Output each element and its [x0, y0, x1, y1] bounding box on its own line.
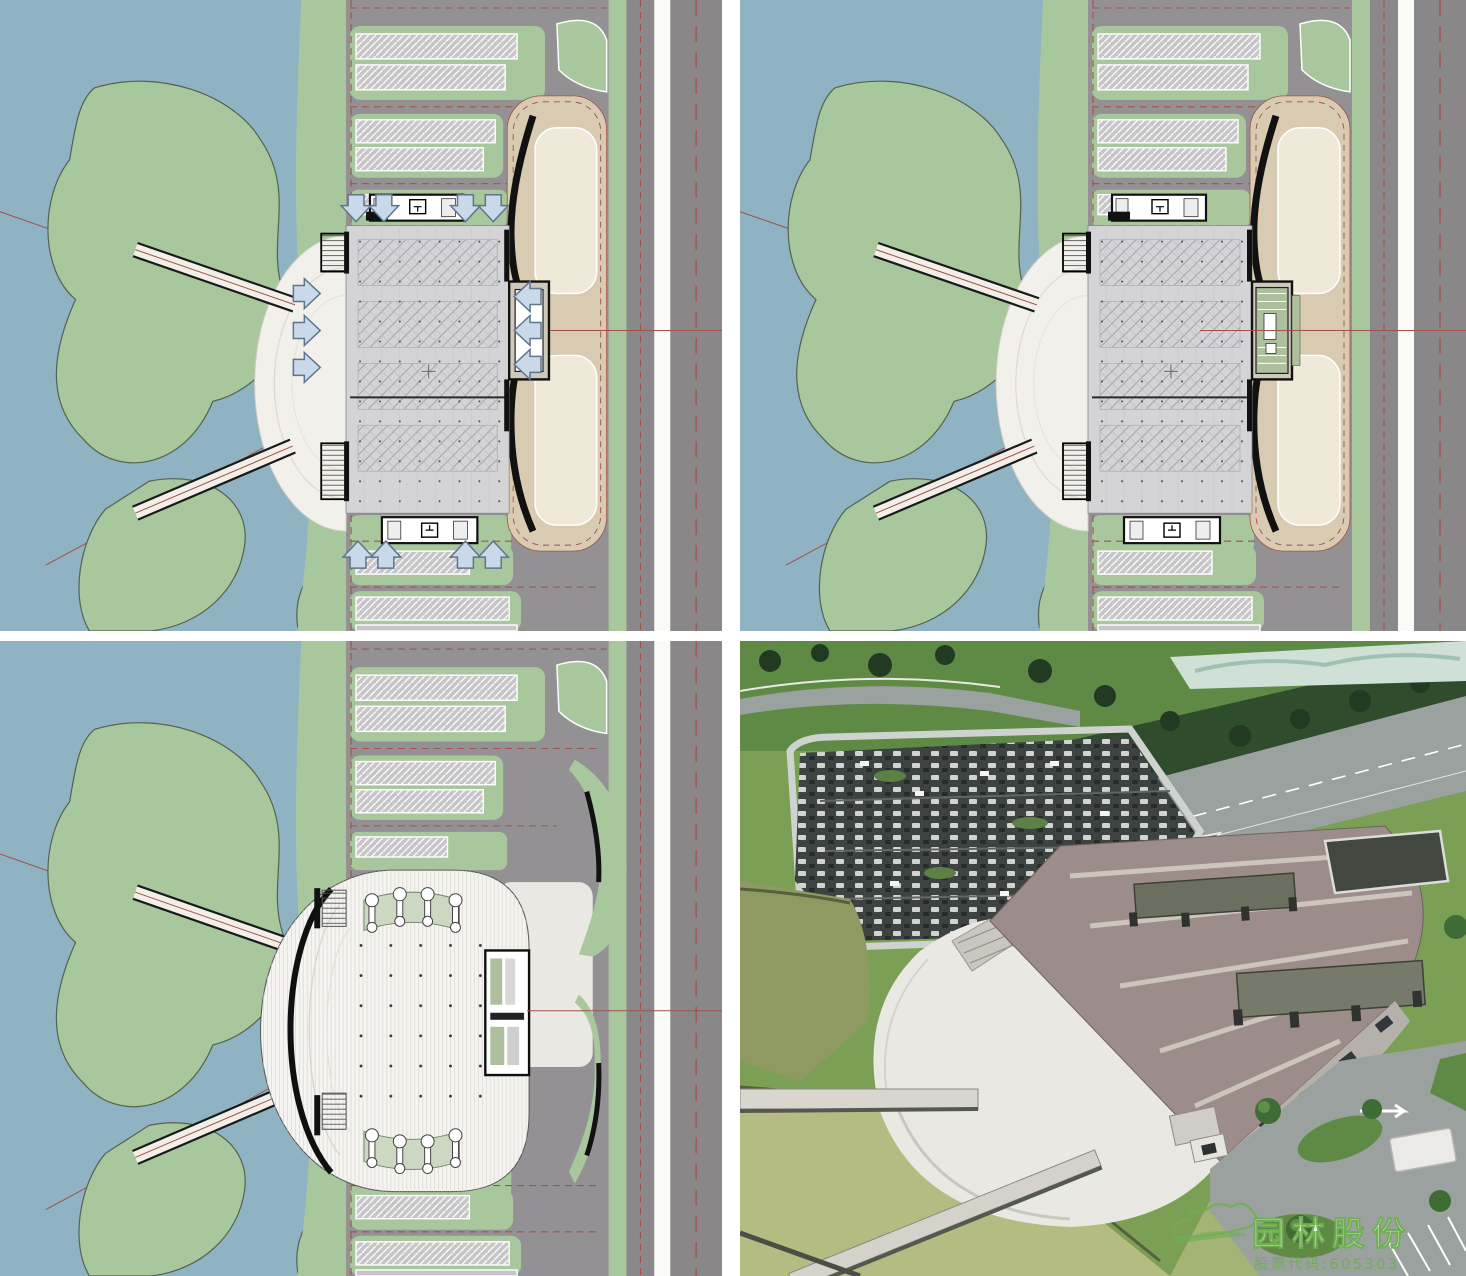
presentation-collage: 园林股份 股票代码:605303 [0, 0, 1466, 1276]
panel-aerial-photo: 园林股份 股票代码:605303 [740, 641, 1466, 1276]
watermark-stock-code: 股票代码:605303 [1254, 1256, 1400, 1273]
building-roof [261, 870, 532, 1192]
panel-roof-plan [0, 641, 722, 1276]
watermark-company: 园林股份 [1252, 1214, 1412, 1253]
panel-site-plan-circulation [0, 0, 722, 631]
panel-site-plan [740, 0, 1466, 631]
